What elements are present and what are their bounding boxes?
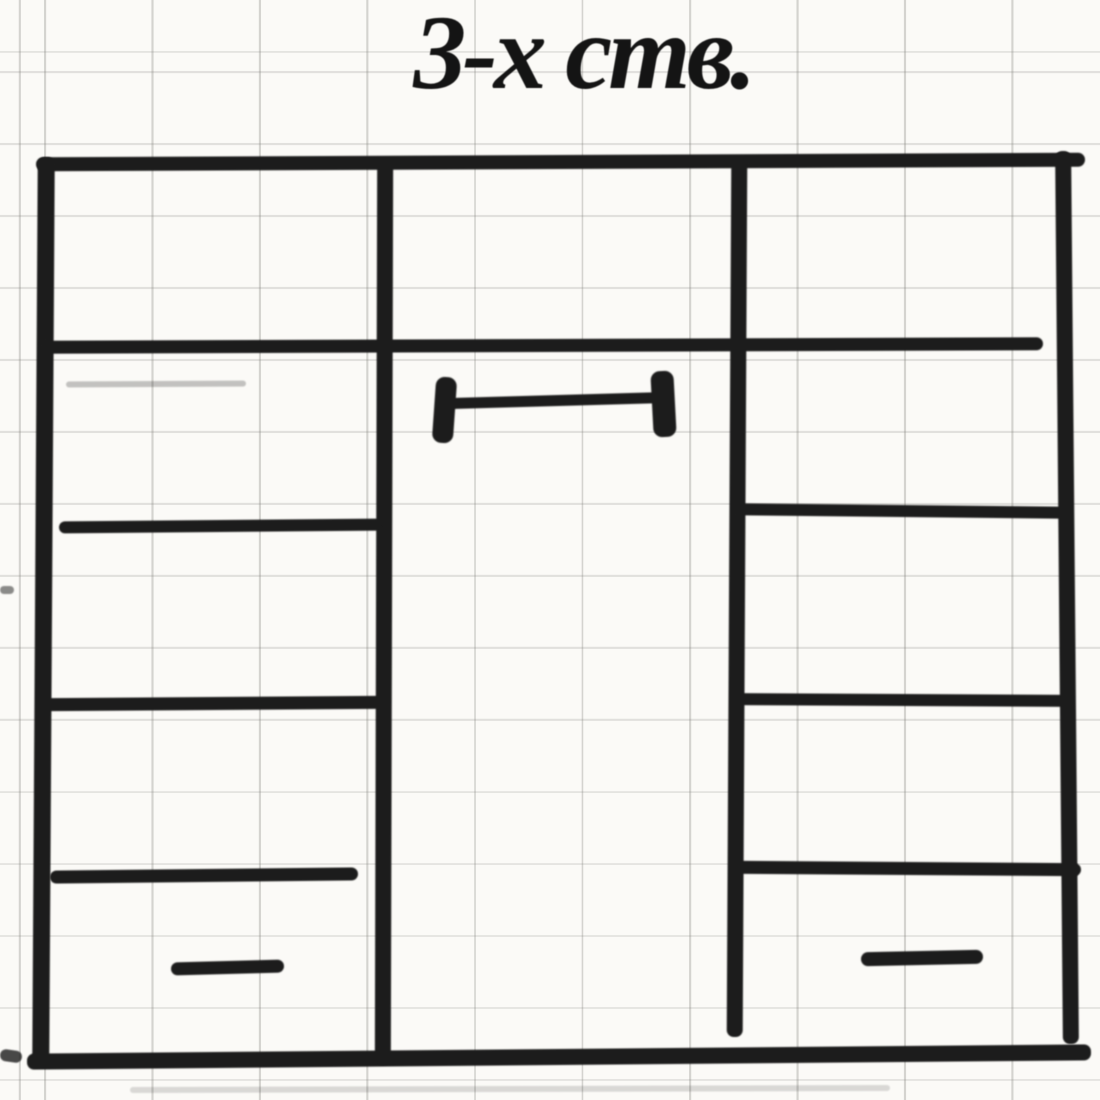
left-shelf-2 xyxy=(38,696,390,711)
wardrobe-left-wall xyxy=(32,157,55,1065)
hanging-rail-end-right xyxy=(650,370,676,437)
left-drawer-handle xyxy=(171,960,284,976)
wardrobe-sketch xyxy=(0,0,1100,1100)
hanging-rail-bar xyxy=(447,392,670,409)
stray-photo-smudge-bottom xyxy=(130,1085,890,1093)
wardrobe-bottom-edge xyxy=(27,1044,1091,1069)
left-shelf-1 xyxy=(59,519,382,534)
divider-left xyxy=(375,159,393,1065)
hanging-rail-end-left xyxy=(432,376,458,443)
right-shelf-1 xyxy=(735,503,1067,518)
divider-right xyxy=(727,157,748,1037)
mezzanine-shelf-line xyxy=(40,337,1043,354)
stray-pencil-smudge xyxy=(66,381,246,388)
wardrobe-right-wall xyxy=(1055,151,1079,1044)
stray-mark-left-middle xyxy=(0,586,14,594)
right-shelf-2 xyxy=(733,693,1073,707)
wardrobe-top-edge xyxy=(36,153,1085,172)
right-drawer-handle xyxy=(861,950,983,967)
sketch-title: 3-х ств. xyxy=(413,0,752,106)
right-shelf-3 xyxy=(736,861,1081,876)
stray-mark-left-bottom xyxy=(0,1049,23,1064)
left-shelf-3 xyxy=(50,867,358,883)
sketch-canvas: 3-х ств. xyxy=(0,0,1100,1100)
